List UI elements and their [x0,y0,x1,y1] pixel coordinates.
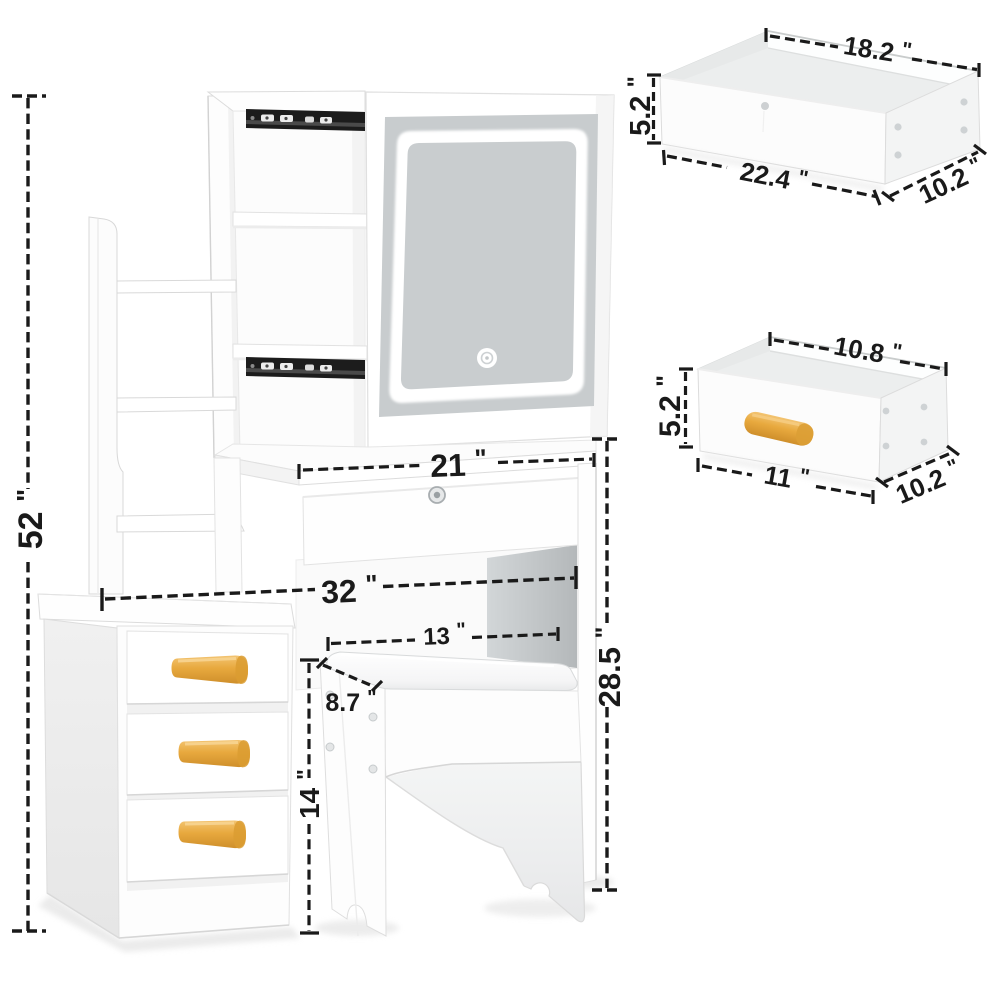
svg-text:28.5 ": 28.5 " [591,627,627,708]
